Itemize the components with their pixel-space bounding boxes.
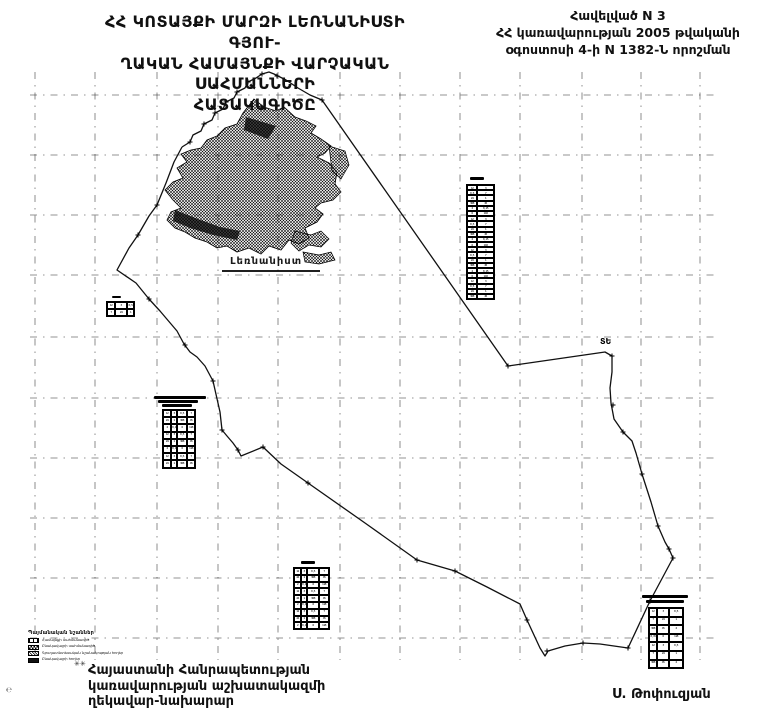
mini-table-cell: 45	[187, 417, 195, 424]
legend-item: Բնակավայրի սահմանագիծ	[28, 645, 148, 650]
mini-table-cell: 7	[187, 432, 195, 439]
mini-table-grid: 1230,572413684520,1561181230,57241368452…	[466, 184, 495, 300]
agricultural-land-symbol	[28, 651, 39, 656]
mini-table-cell: 368	[307, 595, 319, 602]
mini-table-grid: 1230,572413684520,1561181230,57241368452…	[293, 567, 330, 630]
legend-item-label: Համայնքի սահմանագիծ	[42, 639, 89, 643]
mini-table-cell: 118	[187, 424, 195, 431]
table-caption-scribble	[162, 404, 192, 407]
mini-table-cell: 368	[467, 294, 477, 299]
mini-table-cell: 24	[163, 417, 171, 424]
mini-table-cell: 6	[177, 424, 187, 431]
legend-title: Պայմանական նշաններ	[28, 630, 148, 636]
mini-table-cell: 12	[294, 568, 301, 575]
annex-reference: Հավելված N 3 ՀՀ կառավարության 2005 թվակա…	[468, 8, 768, 59]
mini-table-cell: 118	[319, 622, 329, 629]
legend-item: Համայնքի սահմանագիծ	[28, 638, 148, 643]
signature-name: Ս. Թոփուզյան	[612, 687, 711, 702]
mini-table-cell: 7	[649, 651, 657, 660]
mini-table-cell: 12	[294, 588, 301, 595]
map-title-line2: ՂԱԿԱՆ ՀԱՄԱՅՆՔԻ ՎԱՐՉԱԿԱՆ ՍԱՀՄԱՆՆԵՐԻ	[84, 54, 426, 96]
mini-table-cell: 7	[187, 410, 195, 417]
table-caption-scribble	[158, 400, 198, 403]
mini-table-grid: 1230,572413684520,1561181230,57241368452…	[162, 409, 196, 469]
legend-item: Գյուղատնտեսական նշանակության հողեր	[28, 651, 148, 656]
boundary-marker-label: ՏԵ	[600, 337, 611, 346]
legend-item-label: Բնակավայրի սահմանագիծ	[42, 645, 95, 649]
mini-table-cell: 368	[307, 616, 319, 623]
signature-line1: Հայաստանի Հանրապետության	[88, 663, 325, 679]
mini-table-cell: 45	[319, 616, 329, 623]
mini-table-cell: 3	[115, 302, 127, 309]
mini-table-cell: 24	[294, 575, 301, 582]
mini-table-cell: 368	[177, 439, 187, 446]
mini-table-cell: 2	[163, 424, 171, 431]
mini-table-cell: 0,5	[307, 588, 319, 595]
table-caption-scribble	[646, 600, 684, 603]
mini-table-cell: 45	[319, 575, 329, 582]
mini-table-cell: 12	[649, 608, 657, 617]
mini-table-cell: 0,5	[127, 302, 134, 309]
settlement-name-label: Լեռնանիստ	[206, 256, 326, 267]
mini-table-cell: 6	[307, 582, 319, 589]
scan-mark: ✳✳	[74, 660, 86, 668]
mini-table-grid: 1230,572413684520,1561181230,57241368452	[648, 607, 684, 669]
mini-table-cell: 2	[294, 622, 301, 629]
parcel-table-mid-left: 1230,572413684520,1561181230,57241368452…	[162, 409, 196, 469]
parcel-table-small-left: 1230,57241	[106, 301, 135, 317]
mini-table-cell: 45	[477, 294, 494, 299]
mini-table-cell: 368	[177, 417, 187, 424]
mini-table-cell: 6	[177, 446, 187, 453]
table-caption-scribble	[154, 396, 206, 399]
mini-table-cell: 7	[319, 588, 329, 595]
mini-table-cell: 0,5	[307, 609, 319, 616]
other-land-symbol	[28, 658, 39, 663]
table-caption-scribble	[301, 561, 315, 564]
annex-decree-year: ՀՀ կառավարության 2005 թվականի	[468, 25, 768, 42]
mini-table-cell: 45	[187, 460, 195, 467]
legend-items: Համայնքի սահմանագիծԲնակավայրի սահմանագիծ…	[28, 638, 148, 663]
mini-table-cell: 6	[657, 634, 669, 643]
map-title-line1: ՀՀ ԿՈՏԱՅՔԻ ՄԱՐԶԻ ԼԵՌՆԱՆԻՍՏԻ ԳՅՈՒ-	[84, 12, 426, 54]
mini-table-cell: 0,5	[307, 568, 319, 575]
mini-table-cell: 0,5	[177, 410, 187, 417]
mini-table-cell: 1	[127, 309, 134, 316]
mini-table-cell: 0,5	[669, 608, 683, 617]
mini-table-cell: 368	[177, 460, 187, 467]
mini-table-cell: 24	[657, 617, 669, 626]
parcel-table-bottom-center: 1230,572413684520,1561181230,57241368452…	[293, 567, 330, 630]
mini-table-cell: 7	[187, 453, 195, 460]
mini-table-cell: 24	[657, 651, 669, 660]
mini-table-cell: 7	[649, 617, 657, 626]
mini-table-cell: 12	[163, 453, 171, 460]
mini-table-cell: 2	[294, 602, 301, 609]
mini-table-cell: 45	[657, 625, 669, 634]
mini-table-cell: 118	[669, 634, 683, 643]
table-caption-scribble	[112, 296, 121, 298]
mini-table-cell: 368	[649, 625, 657, 634]
mini-table-cell: 12	[649, 642, 657, 651]
mini-table-cell: 12	[163, 432, 171, 439]
signature-block: Հայաստանի Հանրապետության կառավարության ա…	[88, 663, 325, 710]
mini-table-cell: 45	[187, 439, 195, 446]
mini-table-cell: 0,5	[177, 432, 187, 439]
mini-table-grid: 1230,57241	[106, 301, 135, 317]
mini-table-cell: 0,15	[649, 634, 657, 643]
mini-table-cell: 368	[307, 575, 319, 582]
mini-table-cell: 7	[319, 609, 329, 616]
mini-table-cell: 0,5	[669, 642, 683, 651]
coordinate-grid	[30, 72, 716, 660]
parcel-table-bottom-right: 1230,572413684520,1561181230,57241368452	[648, 607, 684, 669]
mini-table-cell: 0,5	[177, 453, 187, 460]
mini-table-cell: 12	[163, 410, 171, 417]
mini-table-cell: 2	[163, 446, 171, 453]
signature-line2: կառավարության աշխատակազմի	[88, 679, 325, 695]
parcel-table-tall: 1230,572413684520,1561181230,57241368452…	[466, 184, 495, 300]
mini-table-cell: 3	[657, 642, 669, 651]
legend-item-label: Գյուղատնտեսական նշանակության հողեր	[42, 652, 123, 656]
mini-table-cell: 45	[657, 660, 669, 669]
map-title: ՀՀ ԿՈՏԱՅՔԻ ՄԱՐԶԻ ԼԵՌՆԱՆԻՍՏԻ ԳՅՈՒ- ՂԱԿԱՆ …	[84, 12, 426, 116]
mini-table-cell: 1	[669, 651, 683, 660]
mini-table-cell: 2	[669, 625, 683, 634]
mini-table-cell: 6	[307, 602, 319, 609]
mini-table-cell: 3	[657, 608, 669, 617]
mini-table-cell: 118	[319, 602, 329, 609]
mini-table-cell: 7	[319, 568, 329, 575]
mini-table-cell: 6	[307, 622, 319, 629]
mini-table-cell: 2	[669, 660, 683, 669]
signature-line3: ղեկավար-նախարար	[88, 694, 325, 710]
boundary-line-symbol	[28, 638, 39, 643]
mini-table-cell: 24	[294, 616, 301, 623]
mini-table-cell: 24	[115, 309, 127, 316]
settlement-area	[165, 99, 349, 264]
legend-item: Բնակավայրի հողեր	[28, 658, 148, 663]
settlement-area-symbol	[28, 645, 39, 650]
mini-table-cell: 1	[669, 617, 683, 626]
mini-table-cell: 368	[649, 660, 657, 669]
corner-mark: ℮	[6, 686, 12, 694]
mini-table-cell: 45	[319, 595, 329, 602]
map-title-line3: ՀԱՏԱԿԱԳԻԾԸ	[84, 95, 426, 116]
annex-number: Հավելված N 3	[468, 8, 768, 25]
table-caption-scribble	[642, 595, 688, 598]
map-legend: Պայմանական նշաններ Համայնքի սահմանագիծԲն…	[28, 630, 148, 664]
table-caption-scribble	[470, 177, 484, 180]
mini-table-cell: 12	[294, 609, 301, 616]
annex-decree-number: օգոստոսի 4-ի N 1382-Ն որոշման	[468, 42, 768, 59]
mini-table-cell: 24	[163, 439, 171, 446]
mini-table-cell: 24	[294, 595, 301, 602]
mini-table-cell: 118	[187, 446, 195, 453]
mini-table-cell: 7	[107, 309, 115, 316]
mini-table-cell: 12	[107, 302, 115, 309]
mini-table-cell: 2	[294, 582, 301, 589]
mini-table-cell: 24	[163, 460, 171, 467]
mini-table-cell: 118	[319, 582, 329, 589]
